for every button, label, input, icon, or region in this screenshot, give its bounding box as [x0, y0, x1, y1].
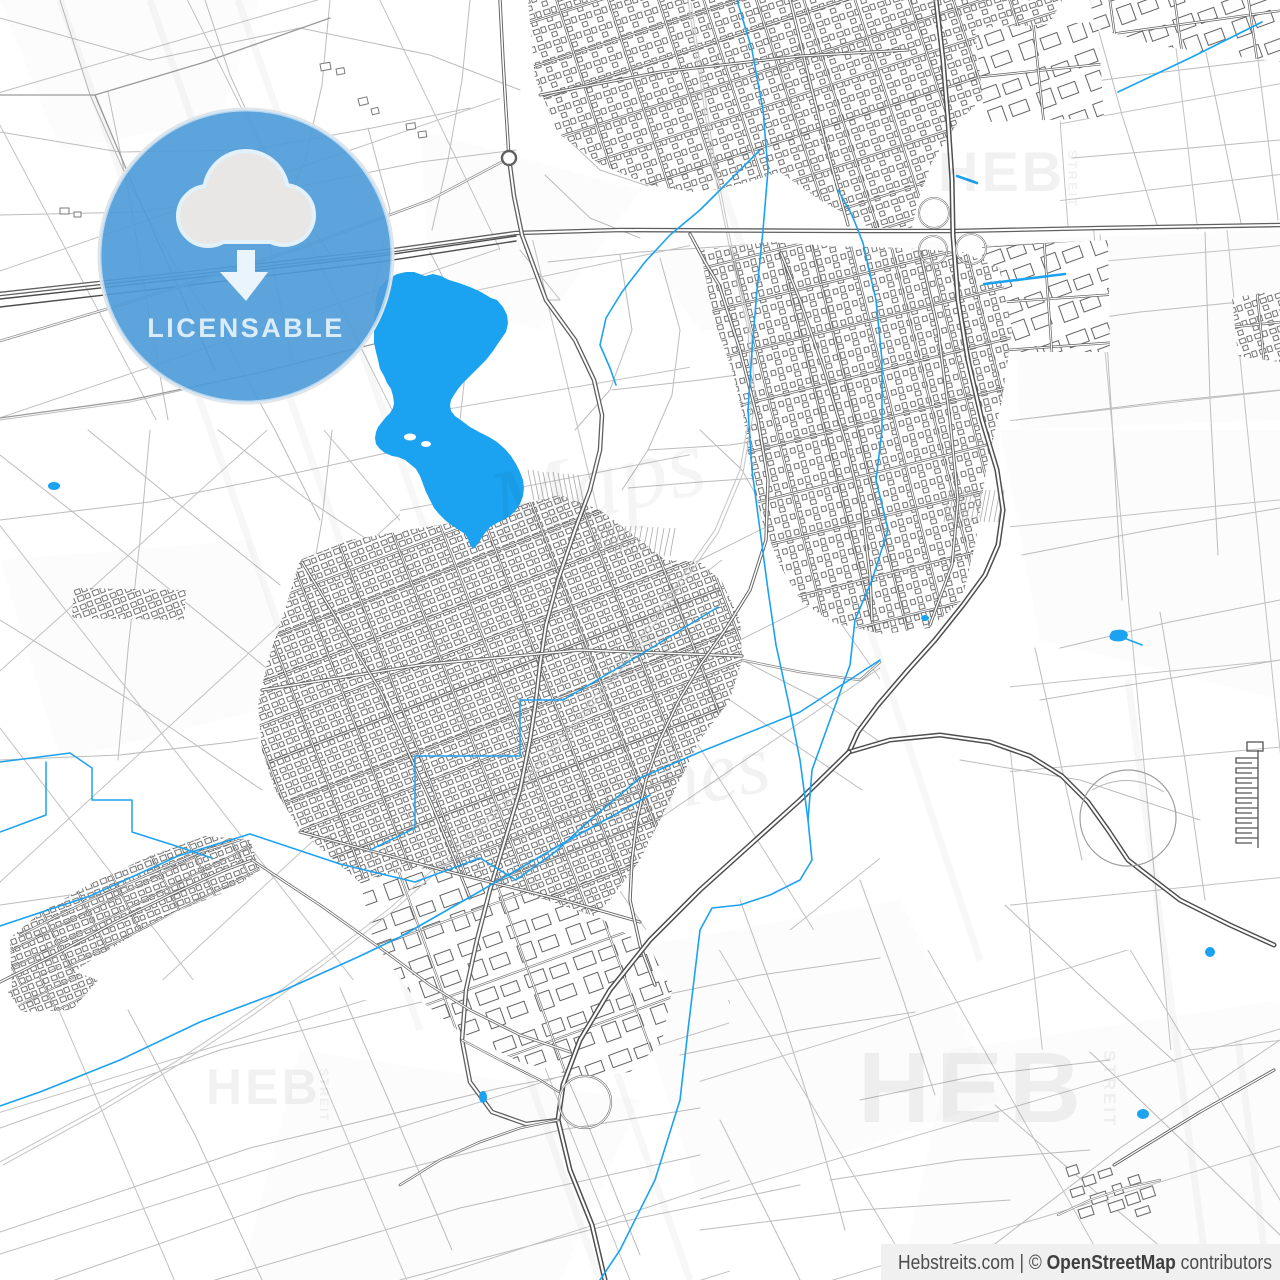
- svg-text:HEB: HEB: [206, 1059, 321, 1115]
- svg-text:LICENSABLE: LICENSABLE: [147, 313, 345, 343]
- svg-text:STREIT: STREIT: [1100, 1050, 1119, 1128]
- svg-text:HEB: HEB: [858, 1032, 1087, 1144]
- svg-text:STREIT: STREIT: [317, 1068, 331, 1123]
- svg-text:STREIT: STREIT: [1065, 150, 1080, 208]
- svg-text:HEB: HEB: [938, 140, 1065, 203]
- svg-text:Hebstreits.com | © OpenStreetM: Hebstreits.com | © OpenStreetMap contrib…: [898, 1252, 1272, 1274]
